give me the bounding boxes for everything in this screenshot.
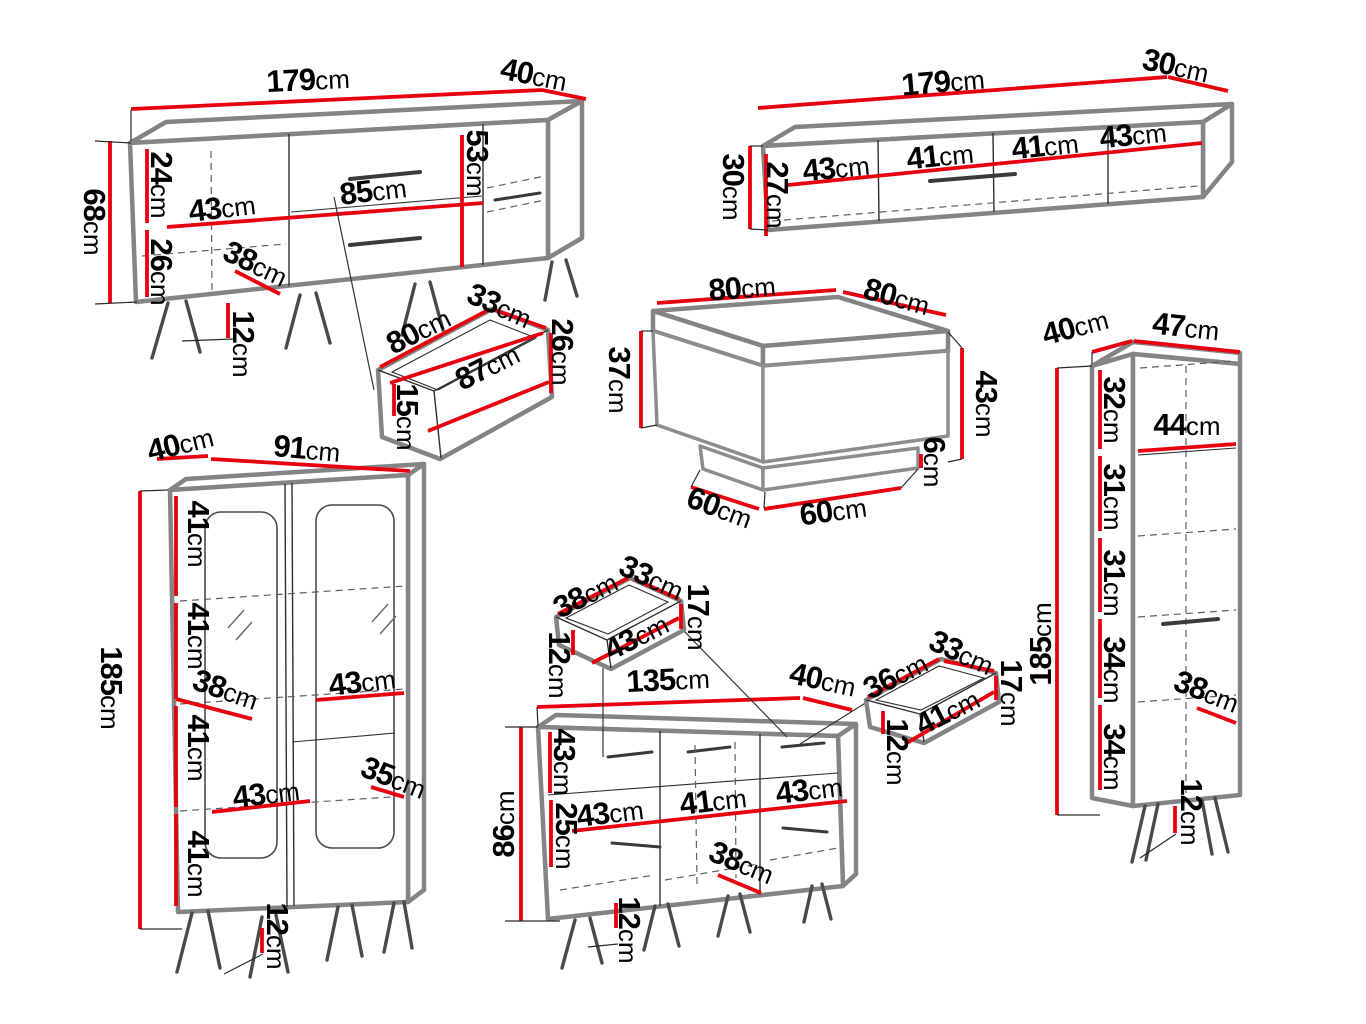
vitrine-depth-label: 40cm — [143, 418, 217, 468]
chest-drawer-left-inner-height-label: 12cm — [542, 631, 577, 698]
sideboard-height-label: 68cm — [77, 188, 112, 255]
chest-drawer-left-front-height-label: 17cm — [681, 583, 716, 650]
tv-stand-height-label: 30cm — [716, 153, 751, 220]
vitrine-section4-label: 41cm — [181, 830, 216, 897]
chest-drawer-row-label: 43cm — [547, 728, 582, 795]
tv-stand-inner-height-label: 27cm — [760, 161, 795, 228]
big-drawer-inner-height-label: 15cm — [390, 383, 425, 450]
coffee-table-height-right-label: 43cm — [969, 370, 1004, 437]
tall-cabinet-section2-label: 31cm — [1097, 463, 1132, 530]
chest-height-label: 86cm — [486, 790, 521, 857]
vitrine-height-label: 185cm — [94, 646, 129, 729]
chest-width-label: 135cm — [625, 660, 710, 699]
chest-drawer-right-front-height-label: 17cm — [994, 659, 1029, 726]
vitrine-width-label: 91cm — [272, 428, 342, 469]
vitrine-leg-label: 12cm — [260, 902, 295, 969]
vitrine-section3-label: 41cm — [181, 714, 216, 781]
tall-cabinet-shelf-width-label: 44cm — [1153, 407, 1220, 442]
chest-drawer-right-inner-height-label: 12cm — [880, 718, 915, 785]
sideboard-leg-label: 12cm — [226, 310, 261, 377]
coffee-table-plinth-label: 6cm — [917, 437, 952, 488]
sideboard-side-face — [548, 101, 582, 258]
sideboard-upper-inner-label: 24cm — [144, 151, 179, 218]
tall-cabinet-section1-label: 32cm — [1097, 376, 1132, 443]
diagram-canvas: 179cm 40cm 68cm 24cm 26cm 43cm 85cm 53cm… — [0, 0, 1366, 1024]
coffee-table-base-width-label: 60cm — [797, 488, 868, 532]
tall-cabinet-depth-label: 40cm — [1038, 301, 1112, 352]
tall-cabinet-section5-label: 34cm — [1097, 723, 1132, 790]
tall-cabinet-leg-label: 12cm — [1174, 778, 1209, 845]
vitrine-section1-label: 41cm — [181, 500, 216, 567]
vitrine-side-face — [408, 464, 424, 902]
coffee-table-top-width-label: 80cm — [707, 267, 777, 308]
tv-stand-depth-label: 30cm — [1139, 41, 1212, 89]
tall-cabinet-width-label: 47cm — [1151, 306, 1221, 348]
furniture-dimension-diagram: 179cm 40cm 68cm 24cm 26cm 43cm 85cm 53cm… — [0, 0, 1366, 1024]
tv-stand-width-label: 179cm — [900, 60, 986, 102]
coffee-table-base-depth-label: 60cm — [682, 480, 757, 536]
big-drawer-front-height-label: 26cm — [545, 318, 580, 385]
tall-cabinet-section3-label: 31cm — [1097, 549, 1132, 616]
coffee-table-drawing — [641, 290, 962, 509]
tall-cabinet-section4-label: 34cm — [1097, 636, 1132, 703]
coffee-table-height-left-label: 37cm — [602, 346, 637, 413]
sideboard-drawer-section-label: 53cm — [460, 129, 495, 196]
chest-leg-label: 12cm — [612, 896, 647, 963]
sideboard-lower-inner-label: 26cm — [144, 238, 179, 305]
tv-stand-side-face — [1203, 104, 1232, 197]
vitrine-section2-label: 41cm — [181, 602, 216, 669]
sideboard-width-label: 179cm — [265, 60, 350, 99]
